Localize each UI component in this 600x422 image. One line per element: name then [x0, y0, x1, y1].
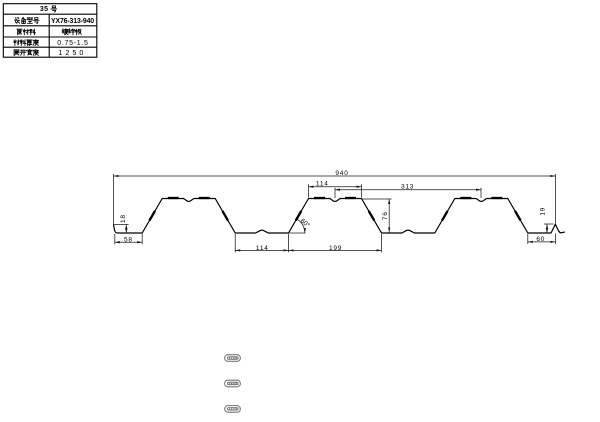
svg-text:199: 199	[329, 245, 342, 252]
svg-text:YX76-313-940: YX76-313-940	[51, 18, 94, 25]
svg-text:114: 114	[256, 245, 269, 252]
svg-text:35: 35	[40, 6, 49, 13]
svg-text:940: 940	[335, 170, 348, 177]
svg-text:76: 76	[382, 211, 389, 220]
svg-text:1250: 1250	[58, 48, 86, 57]
svg-text:58: 58	[124, 236, 133, 243]
svg-text:313: 313	[401, 184, 414, 191]
svg-text:114: 114	[316, 180, 329, 187]
svg-text:18: 18	[120, 214, 127, 223]
svg-text:19: 19	[540, 207, 547, 216]
svg-text:0.75-1.5: 0.75-1.5	[57, 40, 88, 47]
svg-text:60: 60	[536, 236, 545, 243]
